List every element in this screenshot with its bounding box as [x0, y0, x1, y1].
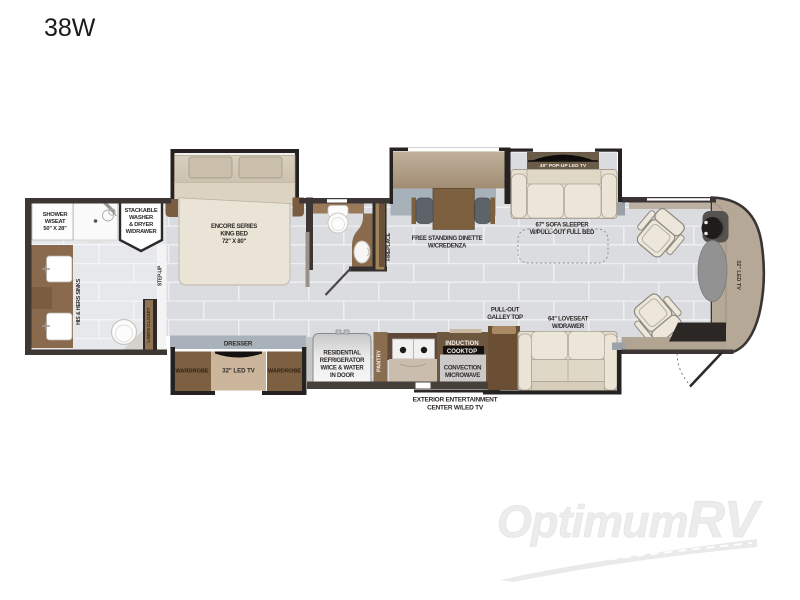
- svg-text:IN DOOR: IN DOOR: [330, 373, 355, 379]
- svg-text:MICROWAVE: MICROWAVE: [445, 373, 480, 379]
- svg-text:W/ICE & WATER: W/ICE & WATER: [321, 366, 365, 372]
- svg-text:RESIDENTIAL: RESIDENTIAL: [323, 351, 361, 357]
- svg-text:KING BED: KING BED: [220, 232, 248, 238]
- svg-text:WASHER: WASHER: [129, 215, 154, 221]
- svg-text:CONVECTION: CONVECTION: [444, 366, 482, 372]
- svg-text:FREE STANDING DINETTE: FREE STANDING DINETTE: [412, 236, 483, 242]
- svg-text:HIS & HERS SINKS: HIS & HERS SINKS: [76, 279, 82, 325]
- svg-text:EXTERIOR ENTERTAINMENT: EXTERIOR ENTERTAINMENT: [413, 397, 498, 404]
- svg-text:CENTER W/LED TV: CENTER W/LED TV: [427, 405, 484, 412]
- svg-text:W/CREDENZA: W/CREDENZA: [428, 244, 467, 250]
- svg-text:72" X 80": 72" X 80": [222, 239, 247, 245]
- svg-text:WARDROBE: WARDROBE: [268, 369, 302, 375]
- svg-text:SHOWER: SHOWER: [43, 212, 69, 218]
- svg-text:STACKABLE: STACKABLE: [124, 208, 157, 214]
- svg-text:PANTRY: PANTRY: [377, 350, 383, 372]
- svg-text:LINEN CLOSET: LINEN CLOSET: [146, 307, 152, 342]
- svg-text:PULL-OUT: PULL-OUT: [491, 308, 520, 314]
- svg-text:64" LOVESEAT: 64" LOVESEAT: [548, 317, 589, 323]
- svg-text:REFRIGERATOR: REFRIGERATOR: [320, 358, 365, 364]
- svg-text:OptimumRV: OptimumRV: [497, 491, 763, 549]
- svg-text:67" SOFA SLEEPER: 67" SOFA SLEEPER: [536, 223, 590, 229]
- svg-text:GALLEY TOP: GALLEY TOP: [487, 315, 523, 321]
- svg-text:W/SEAT: W/SEAT: [45, 219, 66, 225]
- svg-text:DRESSER: DRESSER: [224, 341, 253, 348]
- svg-text:WARDROBE: WARDROBE: [175, 369, 209, 375]
- svg-text:W/PULL-OUT FULL BED: W/PULL-OUT FULL BED: [530, 230, 595, 236]
- svg-text:W/DRAWER: W/DRAWER: [126, 229, 158, 235]
- svg-text:50" X 28": 50" X 28": [43, 226, 67, 232]
- svg-text:STEP-UP: STEP-UP: [158, 265, 164, 286]
- svg-text:38W: 38W: [44, 14, 96, 42]
- svg-text:FIREPLACE: FIREPLACE: [386, 232, 392, 260]
- svg-text:32" LED TV: 32" LED TV: [222, 369, 255, 375]
- svg-text:COOKTOP: COOKTOP: [447, 349, 477, 355]
- svg-text:49" POP-UP LED TV: 49" POP-UP LED TV: [540, 163, 587, 169]
- svg-text:W/DRAWER: W/DRAWER: [552, 324, 585, 330]
- svg-text:& DRYER: & DRYER: [129, 222, 154, 228]
- svg-text:ENCORE SERIES: ENCORE SERIES: [211, 224, 257, 230]
- svg-text:32" LED TV: 32" LED TV: [735, 260, 741, 290]
